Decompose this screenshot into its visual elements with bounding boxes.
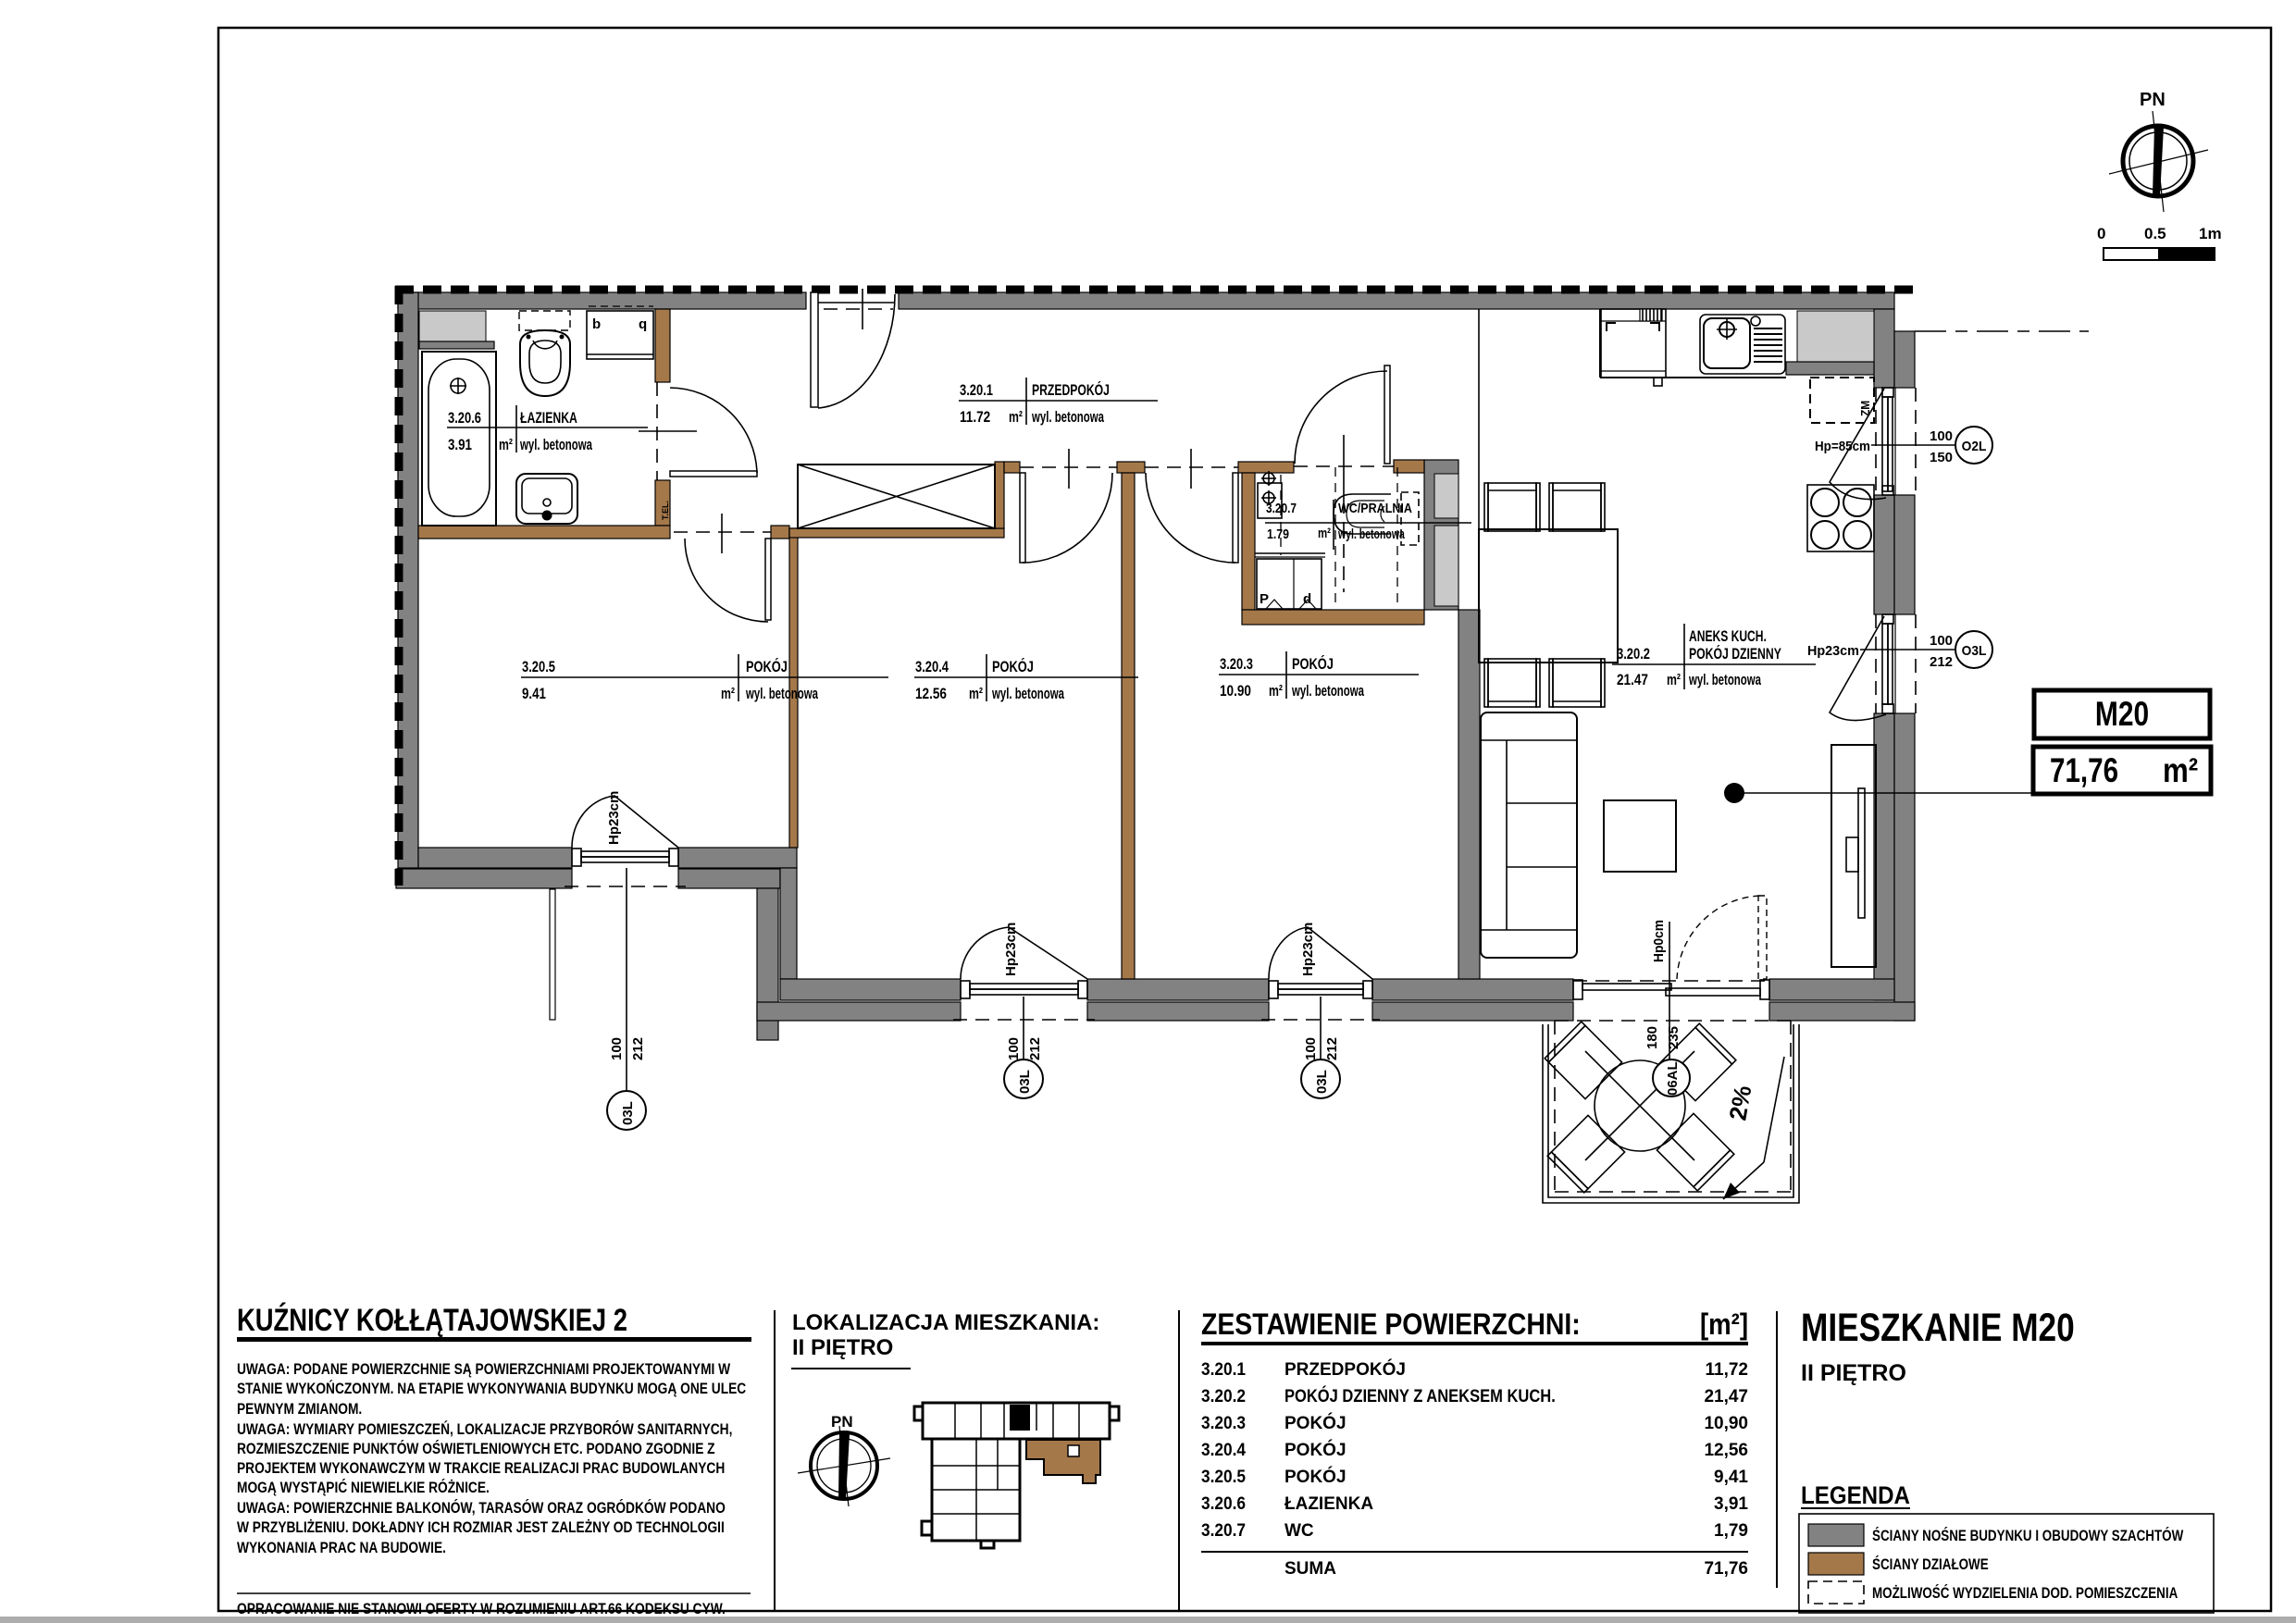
svg-text:3.20.6: 3.20.6	[1201, 1493, 1246, 1513]
svg-text:21,47: 21,47	[1704, 1387, 1748, 1406]
svg-text:0: 0	[2097, 225, 2105, 242]
svg-text:11,72: 11,72	[1706, 1360, 1749, 1380]
svg-text:212: 212	[630, 1037, 646, 1060]
svg-text:MOGĄ WYSTĄPIĆ NIEWIELKIE RÓŻNI: MOGĄ WYSTĄPIĆ NIEWIELKIE RÓŻNICE.	[237, 1479, 490, 1497]
svg-text:3.20.6: 3.20.6	[448, 409, 481, 427]
svg-text:21.47: 21.47	[1617, 672, 1648, 689]
svg-text:PN: PN	[2140, 90, 2166, 110]
svg-text:wyl. betonowa: wyl. betonowa	[1688, 672, 1761, 689]
svg-text:2%: 2%	[1723, 1084, 1756, 1122]
svg-text:212: 212	[1930, 654, 1953, 670]
svg-text:MIESZKANIE M20: MIESZKANIE M20	[1801, 1306, 2075, 1350]
svg-text:PRZEDPOKÓJ: PRZEDPOKÓJ	[1032, 380, 1110, 400]
svg-text:UWAGA: POWIERZCHNIE BALKONÓW,: UWAGA: POWIERZCHNIE BALKONÓW, TARASÓW OR…	[237, 1499, 726, 1518]
svg-text:P: P	[1260, 591, 1269, 607]
svg-text:12,56: 12,56	[1704, 1441, 1748, 1460]
svg-text:0.5: 0.5	[2144, 225, 2166, 242]
svg-text:3.20.1: 3.20.1	[960, 381, 993, 399]
svg-text:O3L: O3L	[1962, 643, 1987, 659]
svg-text:150: 150	[1930, 450, 1953, 465]
svg-text:wyl. betonowa: wyl. betonowa	[519, 437, 592, 454]
svg-text:m²: m²	[1667, 672, 1681, 688]
svg-text:Hp23cm: Hp23cm	[1807, 644, 1859, 659]
svg-text:100: 100	[609, 1037, 625, 1060]
svg-text:LOKALIZACJA MIESZKANIA:: LOKALIZACJA MIESZKANIA:	[792, 1310, 1099, 1335]
svg-text:9.41: 9.41	[522, 686, 546, 703]
svg-text:03L: 03L	[1017, 1070, 1033, 1094]
svg-text:10,90: 10,90	[1704, 1414, 1748, 1433]
svg-text:3.20.2: 3.20.2	[1201, 1386, 1246, 1406]
svg-text:1m: 1m	[2199, 225, 2222, 242]
svg-text:d: d	[1303, 591, 1311, 607]
svg-text:10.90: 10.90	[1220, 683, 1251, 700]
svg-text:1,79: 1,79	[1714, 1521, 1748, 1541]
svg-text:M20: M20	[2095, 696, 2149, 734]
svg-text:WYKONANIA PRAC NA BUDOWIE.: WYKONANIA PRAC NA BUDOWIE.	[237, 1540, 446, 1557]
svg-text:wyl. betonowa: wyl. betonowa	[745, 686, 818, 703]
svg-text:POKÓJ: POKÓJ	[1292, 654, 1334, 673]
svg-text:b: b	[592, 316, 601, 332]
svg-text:ŚCIANY DZIAŁOWE: ŚCIANY DZIAŁOWE	[1872, 1555, 1989, 1573]
svg-text:q: q	[639, 316, 647, 332]
svg-text:Hp23cm: Hp23cm	[1003, 923, 1019, 976]
svg-text:Hp23cm: Hp23cm	[1300, 923, 1316, 976]
svg-text:II PIĘTRO: II PIĘTRO	[1801, 1360, 1906, 1386]
svg-text:ŁAZIENKA: ŁAZIENKA	[520, 410, 577, 427]
svg-text:PN: PN	[831, 1413, 853, 1431]
svg-text:3.20.3: 3.20.3	[1201, 1413, 1246, 1432]
svg-text:POKÓJ DZIENNY: POKÓJ DZIENNY	[1689, 644, 1781, 663]
svg-text:180: 180	[1644, 1026, 1660, 1049]
svg-text:03L: 03L	[1314, 1070, 1330, 1094]
svg-text:3.20.1: 3.20.1	[1201, 1359, 1246, 1379]
svg-text:LEGENDA: LEGENDA	[1801, 1482, 1910, 1510]
svg-text:Hp23cm: Hp23cm	[606, 791, 622, 845]
svg-text:ANEKS KUCH.: ANEKS KUCH.	[1689, 628, 1767, 645]
svg-text:POKÓJ: POKÓJ	[1285, 1413, 1347, 1433]
svg-text:POKÓJ DZIENNY Z ANEKSEM KUCH.: POKÓJ DZIENNY Z ANEKSEM KUCH.	[1285, 1385, 1556, 1406]
svg-text:ŁAZIENKA: ŁAZIENKA	[1285, 1494, 1373, 1514]
svg-text:wyl. betonowa: wyl. betonowa	[991, 686, 1064, 703]
svg-text:3.20.5: 3.20.5	[522, 658, 555, 675]
svg-text:3.20.4: 3.20.4	[1201, 1440, 1246, 1459]
svg-text:ROZMIESZCZENIE PUNKTÓW OŚWIETL: ROZMIESZCZENIE PUNKTÓW OŚWIETLENIOWYCH E…	[237, 1440, 715, 1458]
svg-text:3.20.3: 3.20.3	[1220, 655, 1253, 673]
svg-text:9,41: 9,41	[1714, 1468, 1748, 1487]
svg-text:71,76: 71,76	[1704, 1559, 1748, 1579]
svg-text:ZESTAWIENIE POWIERZCHNI:: ZESTAWIENIE POWIERZCHNI:	[1201, 1309, 1581, 1342]
svg-text:OPRACOWANIE NIE STANOWI OFERTY: OPRACOWANIE NIE STANOWI OFERTY W ROZUMIE…	[237, 1601, 726, 1618]
svg-text:1.79: 1.79	[1267, 527, 1289, 541]
svg-text:ŚCIANY NOŚNE BUDYNKU I OBUDOWY: ŚCIANY NOŚNE BUDYNKU I OBUDOWY SZACHTÓW	[1872, 1526, 2184, 1544]
svg-text:KUŹNICY KOŁŁĄTAJOWSKIEJ 2: KUŹNICY KOŁŁĄTAJOWSKIEJ 2	[237, 1302, 627, 1338]
svg-text:WC: WC	[1285, 1521, 1314, 1541]
svg-text:POKÓJ: POKÓJ	[1285, 1467, 1347, 1487]
svg-text:UWAGA: WYMIARY POMIESZCZEŃ, LO: UWAGA: WYMIARY POMIESZCZEŃ, LOKALIZACJE …	[237, 1420, 732, 1439]
svg-text:3.91: 3.91	[448, 437, 472, 454]
svg-text:3.20.5: 3.20.5	[1201, 1467, 1246, 1486]
svg-text:11.72: 11.72	[960, 409, 990, 427]
svg-text:100: 100	[1006, 1037, 1022, 1060]
svg-text:ZM: ZM	[1859, 401, 1873, 416]
svg-text:II PIĘTRO: II PIĘTRO	[792, 1335, 893, 1360]
svg-text:Hp=85cm: Hp=85cm	[1815, 439, 1870, 454]
svg-text:m²: m²	[1269, 683, 1283, 700]
svg-text:12.56: 12.56	[915, 686, 947, 703]
svg-text:03L: 03L	[620, 1101, 636, 1125]
svg-text:MOŻLIWOŚĆ WYDZIELENIA DOD. POM: MOŻLIWOŚĆ WYDZIELENIA DOD. POMIESZCZENIA	[1872, 1583, 2178, 1602]
svg-text:STANIE WYKOŃCZONYM. NA ETAPIE: STANIE WYKOŃCZONYM. NA ETAPIE WYKONYWANI…	[237, 1381, 746, 1398]
svg-text:100: 100	[1930, 633, 1953, 649]
svg-text:SUMA: SUMA	[1285, 1559, 1336, 1579]
svg-text:100: 100	[1303, 1037, 1319, 1060]
svg-text:POKÓJ: POKÓJ	[1285, 1440, 1347, 1460]
svg-text:m²: m²	[2163, 752, 2198, 790]
svg-text:wyl. betonowa: wyl. betonowa	[1337, 526, 1405, 541]
svg-text:100: 100	[1930, 428, 1953, 444]
svg-text:PEWNYM ZMIANOM.: PEWNYM ZMIANOM.	[237, 1401, 362, 1419]
svg-text:POKÓJ: POKÓJ	[746, 657, 788, 675]
svg-text:m²: m²	[1009, 409, 1023, 426]
svg-text:W PRZYBLIŻENIU. DOKŁADNY ICH R: W PRZYBLIŻENIU. DOKŁADNY ICH ROZMIAR JES…	[237, 1519, 725, 1537]
svg-text:212: 212	[1027, 1037, 1043, 1060]
svg-text:235: 235	[1666, 1026, 1682, 1049]
svg-text:POKÓJ: POKÓJ	[992, 657, 1034, 675]
svg-text:T.EL.: T.EL.	[661, 501, 670, 520]
svg-text:3,91: 3,91	[1714, 1494, 1748, 1514]
svg-text:3.20.4: 3.20.4	[915, 658, 949, 675]
svg-text:wyl. betonowa: wyl. betonowa	[1291, 683, 1364, 700]
svg-text:WC/PRALNIA: WC/PRALNIA	[1338, 500, 1412, 515]
svg-text:3.20.7: 3.20.7	[1201, 1520, 1246, 1540]
svg-text:3.20.7: 3.20.7	[1266, 501, 1297, 516]
svg-text:06AL: 06AL	[1665, 1061, 1681, 1096]
svg-text:PRZEDPOKÓJ: PRZEDPOKÓJ	[1285, 1359, 1406, 1380]
svg-text:m²: m²	[721, 686, 735, 702]
svg-text:3.20.2: 3.20.2	[1617, 645, 1650, 663]
svg-text:O2L: O2L	[1962, 439, 1987, 454]
svg-text:m²: m²	[1318, 526, 1331, 541]
svg-text:71,76: 71,76	[2050, 752, 2118, 790]
svg-text:212: 212	[1324, 1037, 1340, 1060]
svg-text:[m²]: [m²]	[1700, 1308, 1748, 1341]
svg-text:m²: m²	[969, 686, 983, 702]
svg-text:wyl. betonowa: wyl. betonowa	[1031, 409, 1104, 427]
svg-text:Hp0cm: Hp0cm	[1652, 920, 1668, 962]
svg-text:PROJEKTEM WYKONAWCZYM W TRAKC: PROJEKTEM WYKONAWCZYM W TRAKCIE REALIZAC…	[237, 1460, 725, 1478]
svg-text:UWAGA: PODANE POWIERZCHNIE SĄ: UWAGA: PODANE POWIERZCHNIE SĄ POWIERZCHN…	[237, 1361, 731, 1379]
svg-text:m²: m²	[499, 437, 513, 453]
